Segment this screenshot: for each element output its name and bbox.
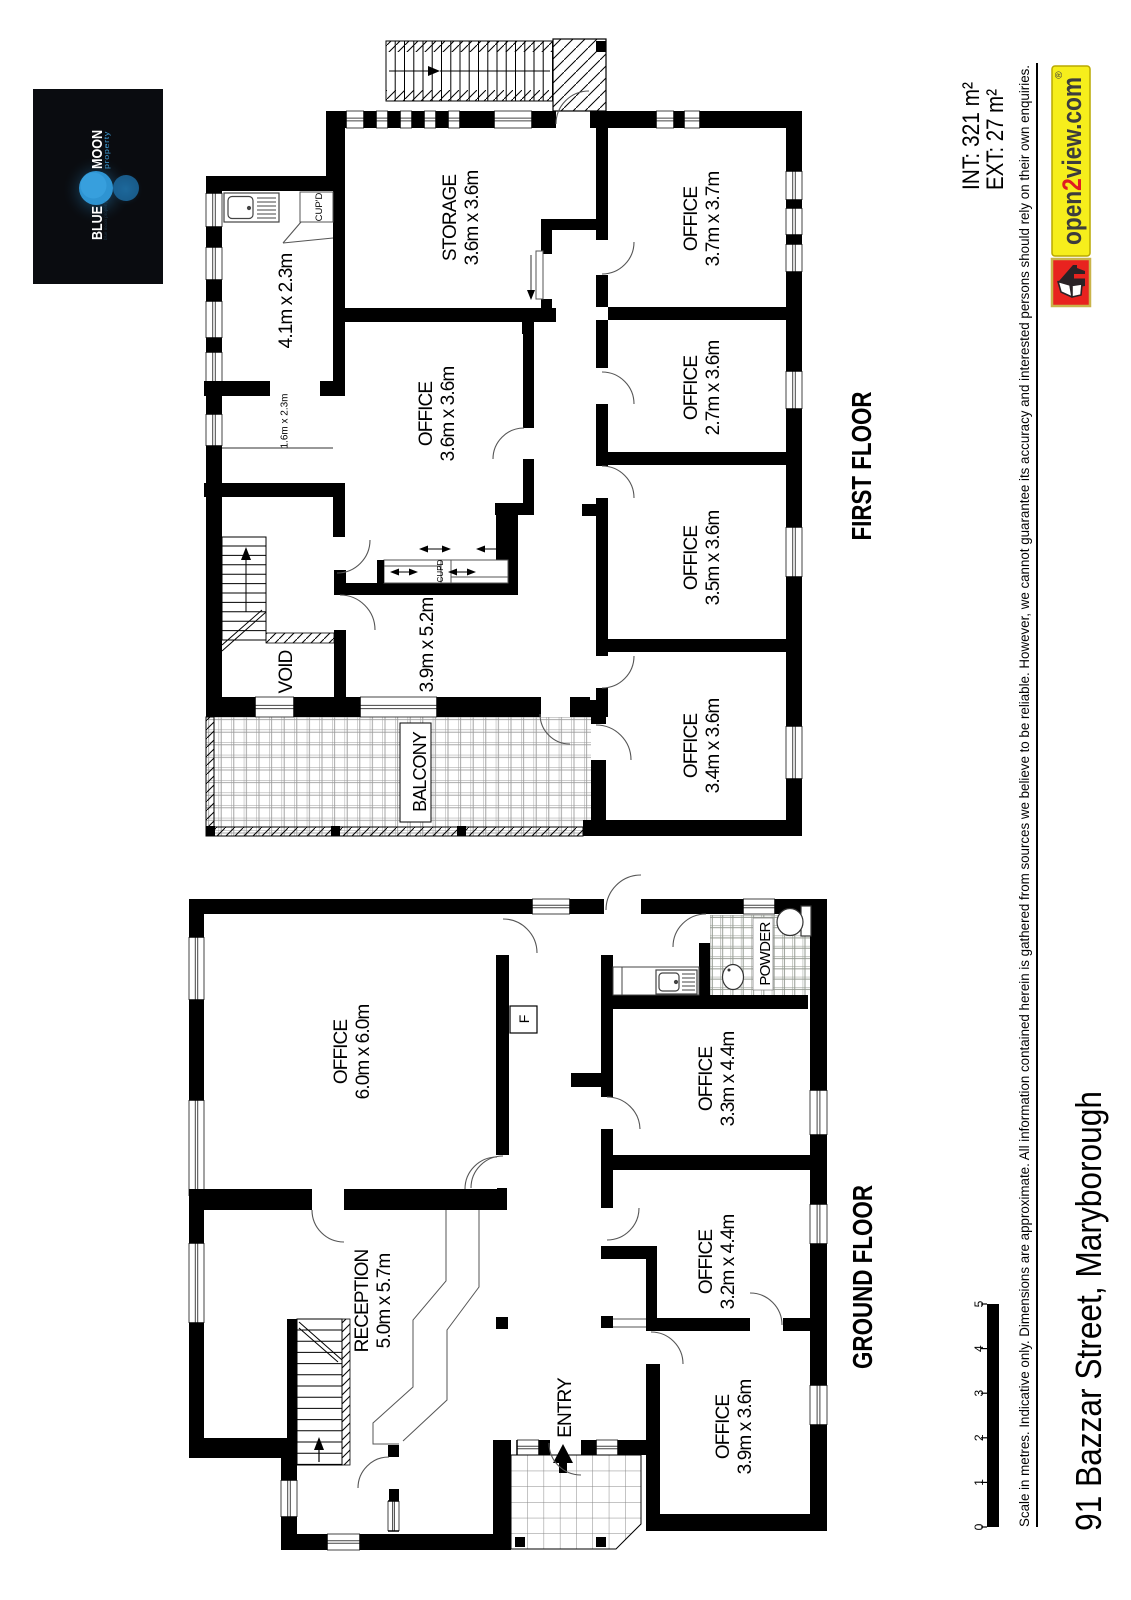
svg-text:®: ®: [1054, 71, 1065, 79]
svg-text:EXT: 27 m²: EXT: 27 m²: [982, 89, 1009, 190]
svg-text:STORAGE: STORAGE: [440, 175, 461, 261]
svg-text:5.0m x 5.7m: 5.0m x 5.7m: [374, 1254, 395, 1349]
svg-text:OFFICE: OFFICE: [416, 382, 437, 446]
svg-text:RECEPTION: RECEPTION: [352, 1249, 373, 1352]
svg-text:3.5m x 3.6m: 3.5m x 3.6m: [703, 511, 724, 606]
svg-text:OFFICE: OFFICE: [696, 1047, 717, 1111]
svg-text:OFFICE: OFFICE: [713, 1395, 734, 1459]
svg-text:2: 2: [972, 1434, 986, 1441]
svg-text:OFFICE: OFFICE: [696, 1230, 717, 1294]
svg-text:OFFICE: OFFICE: [681, 356, 702, 420]
svg-text:4.1m x 2.3m: 4.1m x 2.3m: [276, 254, 297, 349]
svg-text:INT: 321 m²: INT: 321 m²: [958, 82, 985, 190]
svg-text:91 Bazzar Street, Maryborough: 91 Bazzar Street, Maryborough: [1068, 1091, 1109, 1531]
svg-text:3.3m x 4.4m: 3.3m x 4.4m: [718, 1032, 739, 1127]
svg-text:OFFICE: OFFICE: [681, 714, 702, 778]
svg-text:OFFICE: OFFICE: [681, 526, 702, 590]
svg-text:GROUND FLOOR: GROUND FLOOR: [847, 1185, 878, 1369]
svg-text:VOID: VOID: [276, 650, 297, 693]
svg-text:ENTRY: ENTRY: [555, 1377, 576, 1438]
svg-text:1.6m x 2.3m: 1.6m x 2.3m: [280, 393, 291, 448]
svg-text:3.2m x 4.4m: 3.2m x 4.4m: [718, 1215, 739, 1310]
svg-text:property: property: [104, 131, 111, 169]
svg-text:6.0m x 6.0m: 6.0m x 6.0m: [353, 1005, 374, 1100]
svg-text:3.7m x 3.7m: 3.7m x 3.7m: [703, 172, 724, 267]
svg-text:1: 1: [972, 1479, 986, 1486]
svg-text:BALCONY: BALCONY: [410, 731, 430, 812]
svg-text:open2view.com: open2view.com: [1057, 77, 1087, 245]
svg-text:OFFICE: OFFICE: [681, 187, 702, 251]
svg-text:POWDER: POWDER: [757, 921, 774, 985]
svg-text:0: 0: [972, 1523, 986, 1530]
svg-text:3.6m x 3.6m: 3.6m x 3.6m: [438, 367, 459, 462]
svg-text:F: F: [516, 1015, 532, 1024]
svg-text:3: 3: [972, 1390, 986, 1397]
svg-text:3.9m x 3.6m: 3.9m x 3.6m: [735, 1380, 756, 1475]
svg-text:CUP'D: CUP'D: [314, 192, 325, 221]
svg-text:3.6m x 3.6m: 3.6m x 3.6m: [462, 171, 483, 266]
svg-text:5: 5: [972, 1300, 986, 1307]
svg-text:4: 4: [972, 1345, 986, 1352]
svg-text:blue moon property: blue moon property: [103, 200, 108, 240]
svg-text:2.7m x 3.6m: 2.7m x 3.6m: [703, 341, 724, 436]
svg-text:FIRST FLOOR: FIRST FLOOR: [846, 392, 877, 541]
svg-text:3.9m x 5.2m: 3.9m x 5.2m: [417, 598, 438, 693]
svg-text:OFFICE: OFFICE: [331, 1020, 352, 1084]
svg-text:Scale in metres. Indicative on: Scale in metres. Indicative only. Dimens…: [1017, 65, 1032, 1527]
svg-text:3.4m x 3.6m: 3.4m x 3.6m: [703, 699, 724, 794]
svg-text:CUPD: CUPD: [436, 559, 445, 582]
